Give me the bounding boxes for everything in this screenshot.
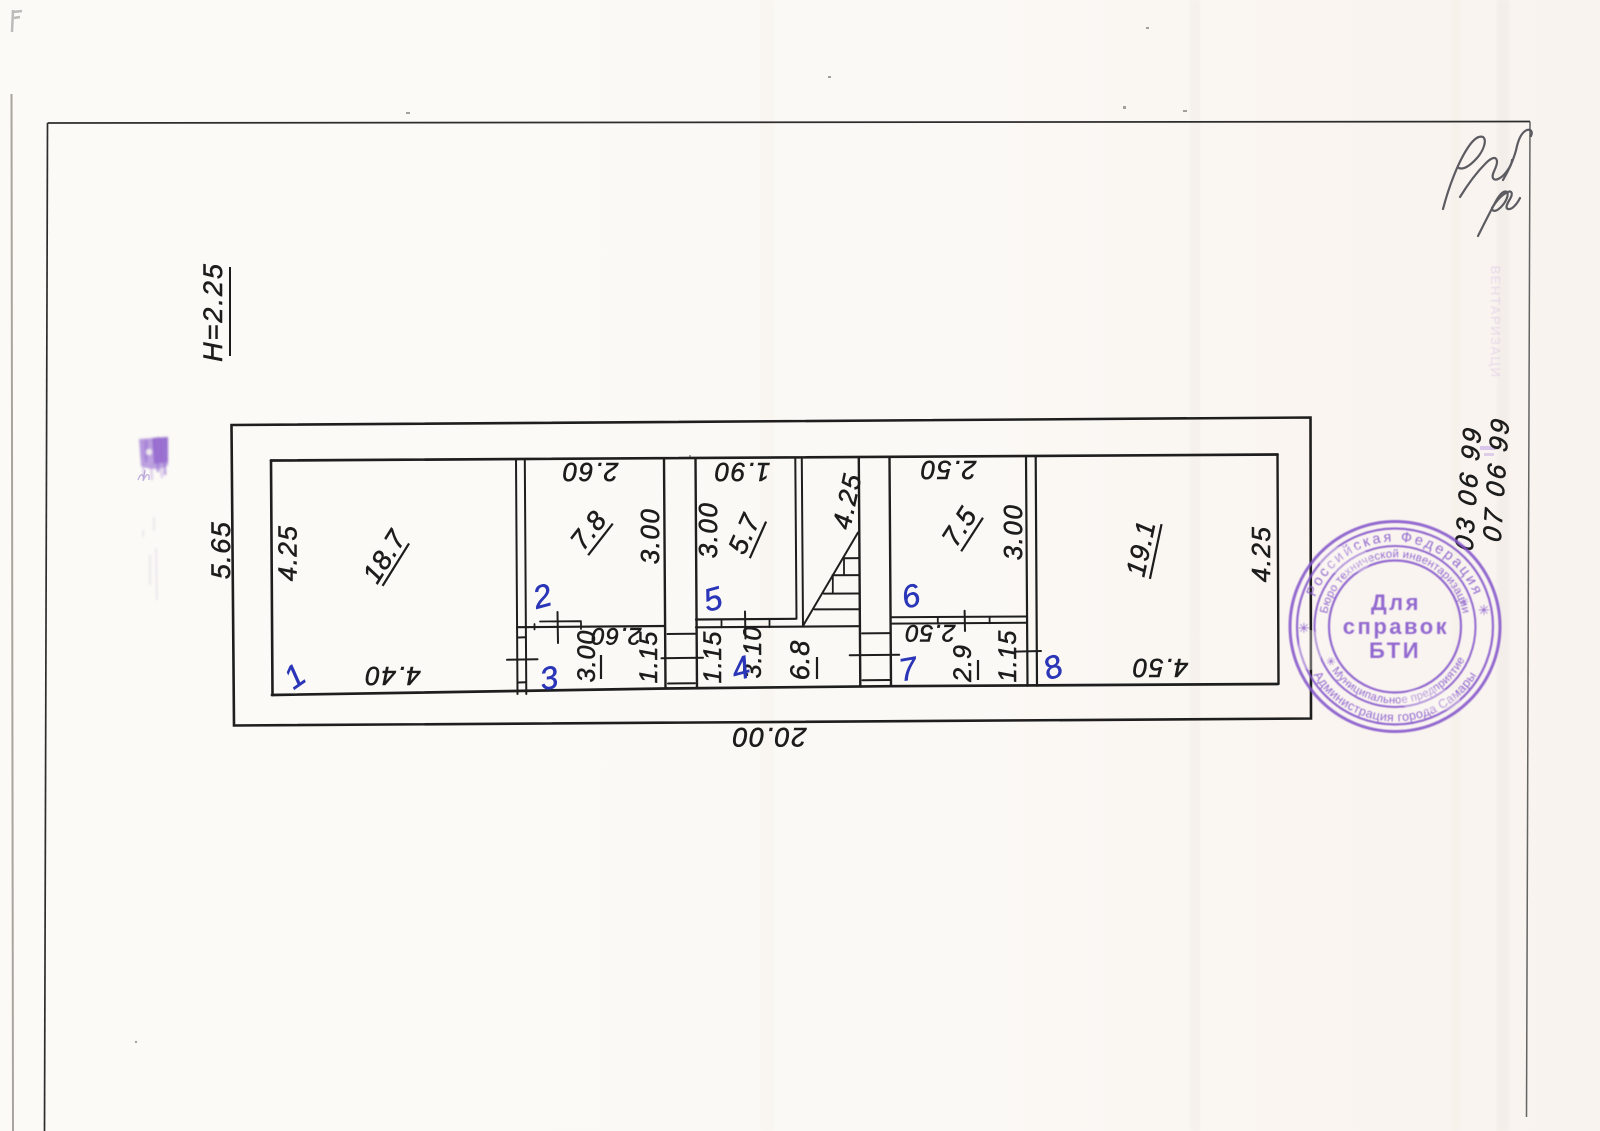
svg-text:2.9: 2.9 [949,644,977,683]
svg-text:1.15: 1.15 [635,631,663,684]
svg-text:20.00: 20.00 [731,722,807,752]
svg-text:ВЕНТАРИЗАЦИ: ВЕНТАРИЗАЦИ [1488,266,1503,379]
svg-text:4.25: 4.25 [1246,526,1276,583]
svg-text:3.00: 3.00 [998,504,1028,561]
svg-text:1.15: 1.15 [699,631,727,684]
svg-text:6.8: 6.8 [785,640,815,681]
svg-text:H=2.25: H=2.25 [198,262,228,362]
svg-text:справок: справок [1343,614,1449,639]
svg-text:4.50: 4.50 [1132,653,1189,683]
svg-text:4.25: 4.25 [273,525,303,582]
svg-text:Для: Для [1371,590,1421,615]
svg-text:БТИ: БТИ [1369,638,1421,663]
svg-text:2.50: 2.50 [920,455,978,485]
svg-text:3.00: 3.00 [635,508,665,565]
svg-text:3.00: 3.00 [693,502,723,559]
svg-text:1.90: 1.90 [714,457,771,487]
svg-text:✳: ✳ [1478,602,1490,618]
svg-text:2.60: 2.60 [562,457,620,487]
svg-text:5.65: 5.65 [206,521,236,580]
svg-text:✳: ✳ [1459,595,1469,609]
svg-text:4.40: 4.40 [364,661,421,691]
svg-text:1.15: 1.15 [994,630,1022,683]
svg-text:2.50: 2.50 [905,619,957,646]
